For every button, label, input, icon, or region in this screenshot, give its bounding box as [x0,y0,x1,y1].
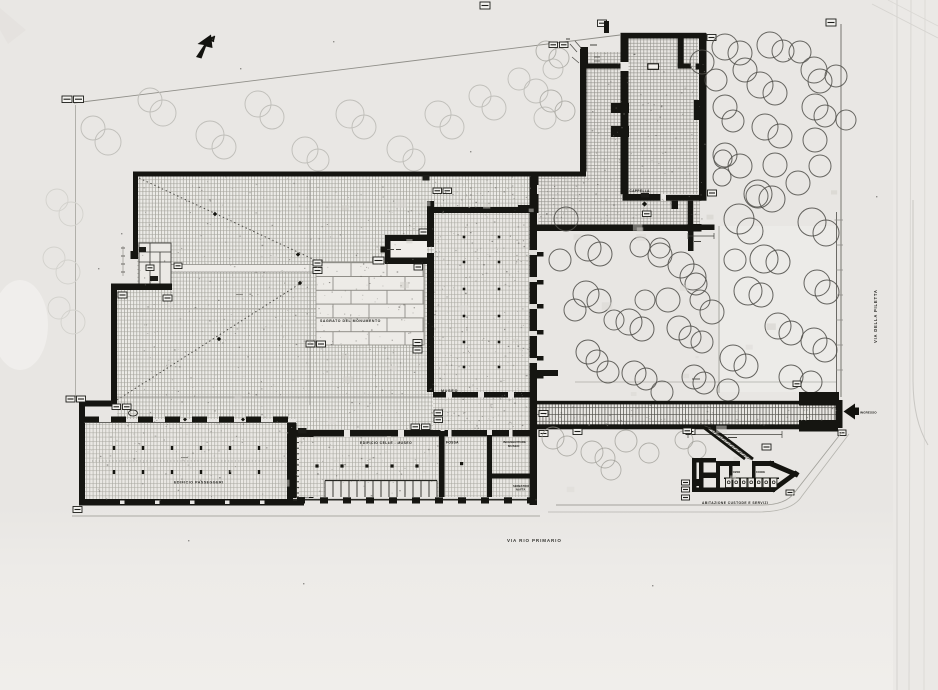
svg-text:EDIFICIO CELLE - MUSEO: EDIFICIO CELLE - MUSEO [360,441,412,445]
svg-text:VIA DELLA PILETTA: VIA DELLA PILETTA [873,289,878,343]
svg-text:CAPPELLA: CAPPELLA [630,189,651,193]
svg-text:EDIFICIO PASSEGGERI: EDIFICIO PASSEGGERI [174,481,224,485]
svg-text:NAFTA: NAFTA [516,488,525,492]
svg-text:VIA RIO PRIMARIO: VIA RIO PRIMARIO [507,538,562,543]
svg-text:DONNE: DONNE [756,471,765,474]
svg-text:UOMINI: UOMINI [731,471,740,474]
svg-text:SERBATOIO: SERBATOIO [513,484,529,488]
svg-text:MUSEO: MUSEO [441,389,458,393]
svg-text:FOSSA: FOSSA [446,441,459,445]
svg-text:MUSEO: MUSEO [508,444,520,448]
svg-text:ABITAZIONE CUSTODE E SERVIZ: ABITAZIONE CUSTODE E SERVIZI [702,501,768,505]
svg-text:INGRESSO: INGRESSO [860,411,877,415]
